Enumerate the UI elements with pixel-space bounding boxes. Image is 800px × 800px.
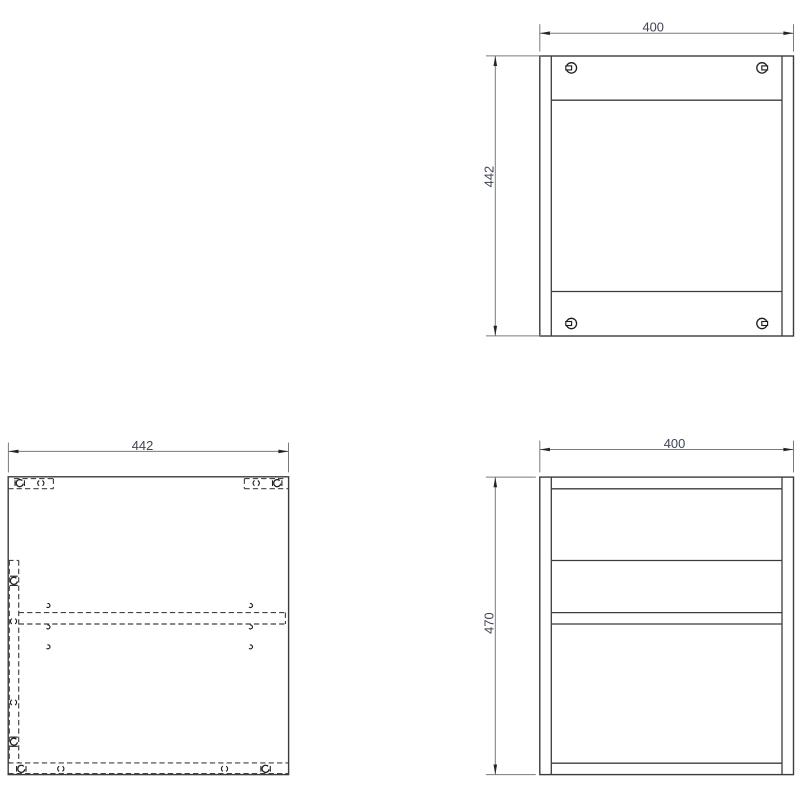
svg-text:442: 442 xyxy=(132,438,154,453)
svg-text:400: 400 xyxy=(664,436,686,451)
svg-text:442: 442 xyxy=(482,166,497,188)
svg-text:400: 400 xyxy=(642,20,664,35)
svg-text:470: 470 xyxy=(482,612,497,634)
